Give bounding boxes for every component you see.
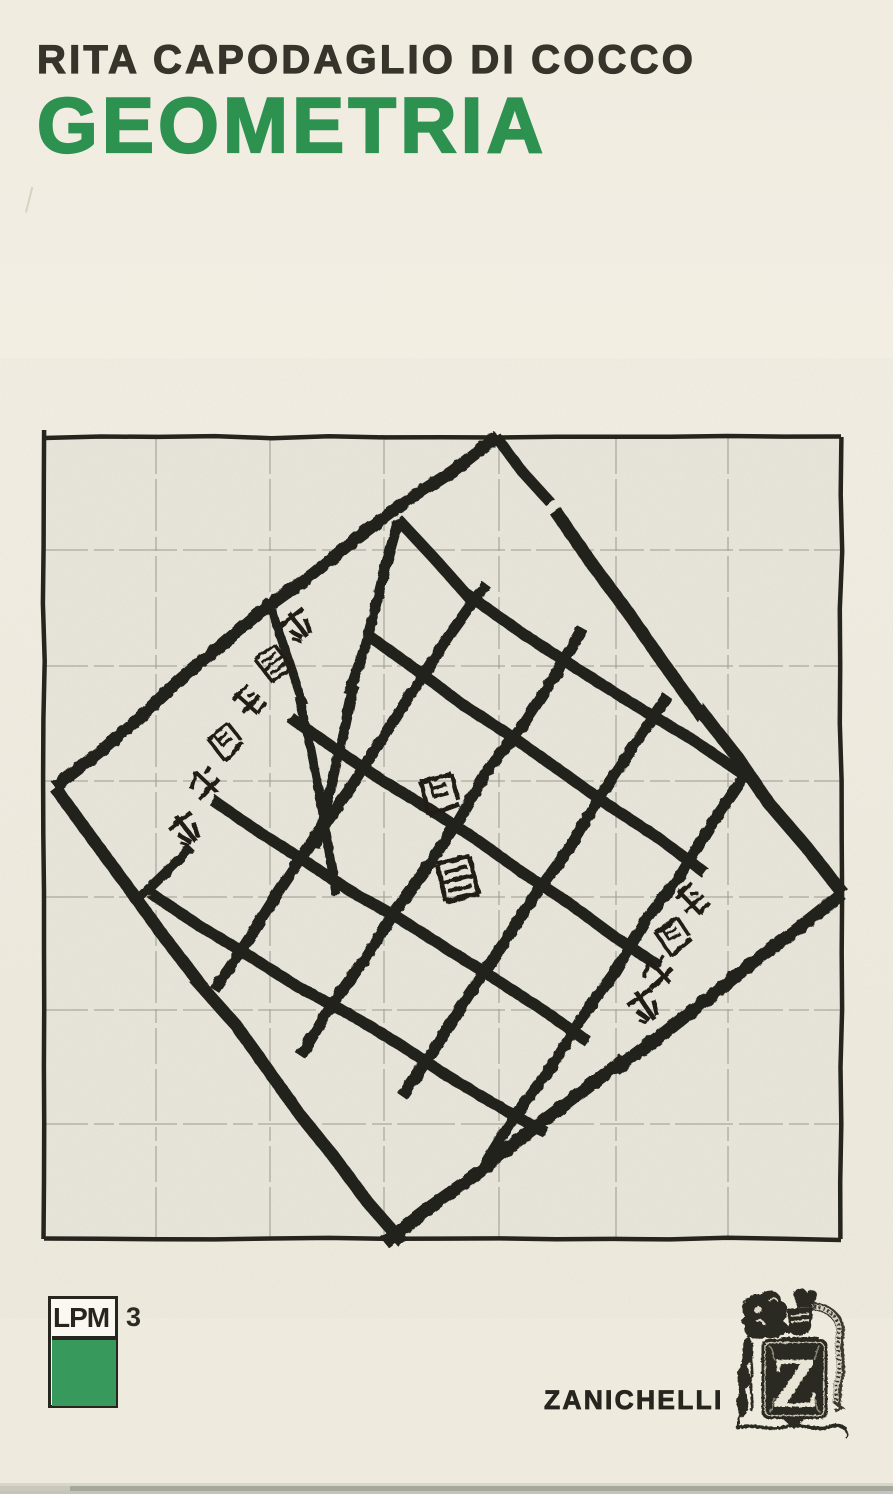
svg-text:Z: Z	[771, 1343, 819, 1423]
